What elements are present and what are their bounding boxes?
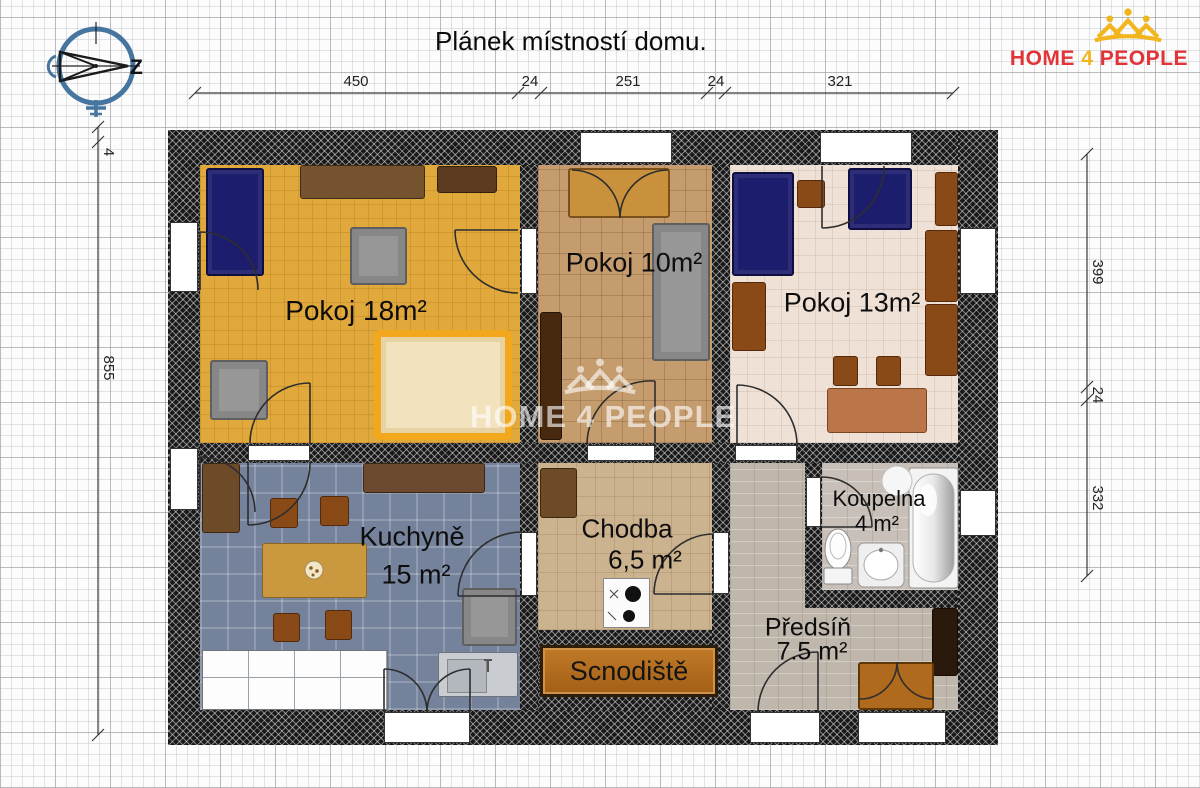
- dimension-right: 399 24 332: [1081, 148, 1106, 582]
- brand-wordmark: HOME 4 PEOPLE: [998, 47, 1188, 71]
- window: [820, 132, 912, 163]
- chair: [876, 356, 901, 386]
- armchair: [462, 588, 517, 646]
- wall-bathroom: [805, 590, 958, 608]
- dimension-top: 450 24 251 24 321: [189, 73, 959, 99]
- dim-label: 24: [708, 73, 725, 90]
- cabinet: [540, 468, 577, 518]
- wall-right: [958, 130, 998, 745]
- dim-label: 24: [1089, 387, 1106, 404]
- wall-interior: [200, 443, 958, 463]
- window: [858, 712, 946, 743]
- shoe-cabinet: [858, 662, 934, 710]
- compass-west-label: Z: [130, 56, 143, 79]
- table: [827, 388, 927, 433]
- wardrobe: [932, 608, 958, 676]
- window: [960, 228, 996, 294]
- chair: [325, 610, 352, 640]
- room-label-pokoj10: Pokoj 10m²: [566, 248, 703, 279]
- room-label-pokoj13: Pokoj 13m²: [784, 288, 921, 319]
- window: [960, 490, 996, 536]
- door-opening: [750, 712, 820, 743]
- brand-four: 4: [1081, 47, 1093, 70]
- brand-people: PEOPLE: [1100, 47, 1188, 70]
- cabinet: [925, 230, 958, 302]
- floorplan-page: Plánek místností domu. HOME 4 PEOPLE: [0, 0, 1200, 788]
- brand-home: HOME: [1010, 47, 1075, 70]
- cabinet: [925, 304, 958, 376]
- kitchen-counter: [202, 650, 388, 710]
- dining-table: [262, 543, 367, 598]
- kitchen-sink: [438, 652, 518, 697]
- door-opening: [384, 712, 470, 743]
- room-area-kuchyne: 15 m²: [381, 560, 450, 591]
- cabinet: [732, 282, 766, 351]
- shelf: [437, 166, 497, 193]
- chair: [270, 498, 298, 528]
- door-opening: [587, 445, 655, 461]
- room-area-chodba: 6,5 m²: [608, 545, 682, 576]
- window: [170, 222, 198, 292]
- wardrobe: [568, 168, 670, 218]
- dim-label: 4: [100, 148, 117, 156]
- dim-label: 321: [827, 73, 852, 90]
- brand-logo: HOME 4 PEOPLE: [998, 8, 1188, 71]
- compass-icon: Z: [48, 22, 143, 117]
- chair: [273, 613, 300, 642]
- armchair: [210, 360, 268, 420]
- sofa: [206, 168, 264, 276]
- dimension-left: 4 855: [92, 121, 117, 741]
- sink-basin: [447, 659, 487, 693]
- door-opening: [735, 445, 797, 461]
- armchair: [848, 168, 912, 230]
- dim-label: 450: [343, 73, 368, 90]
- room-label-kuchyne: Kuchyně: [359, 522, 464, 553]
- staircase-label: Scnodiště: [570, 656, 689, 687]
- dim-label: 855: [100, 355, 117, 380]
- sofa: [652, 223, 710, 361]
- sideboard: [300, 165, 425, 199]
- chair: [833, 356, 858, 386]
- armchair: [350, 227, 407, 285]
- door-opening: [521, 532, 537, 596]
- page-title: Plánek místností domu.: [435, 26, 707, 57]
- wardrobe: [540, 312, 562, 440]
- room-area-koupelna: 4 m²: [855, 511, 899, 537]
- bed: [374, 330, 512, 440]
- dim-label: 251: [615, 73, 640, 90]
- dim-label: 399: [1089, 259, 1106, 284]
- counter: [363, 463, 485, 493]
- window: [170, 448, 198, 510]
- window: [580, 132, 672, 163]
- dim-label: 24: [522, 73, 539, 90]
- door-opening: [713, 532, 729, 594]
- sofa: [732, 172, 794, 276]
- door-opening: [521, 228, 537, 294]
- room-area-predsin: 7.5 m²: [777, 638, 848, 667]
- door-opening: [806, 477, 821, 527]
- wall-interior: [712, 165, 730, 710]
- staircase-box: Scnodiště: [540, 645, 718, 697]
- crown-icon: [1082, 8, 1174, 42]
- chair: [320, 496, 349, 526]
- door-opening: [248, 445, 310, 461]
- cabinet: [935, 172, 958, 226]
- meter-box: [603, 578, 650, 628]
- room-label-koupelna: Koupelna: [833, 486, 926, 512]
- cabinet: [202, 463, 240, 533]
- dim-label: 332: [1089, 485, 1106, 510]
- room-label-chodba: Chodba: [581, 514, 672, 545]
- room-label-pokoj18: Pokoj 18m²: [285, 295, 427, 327]
- side-table: [797, 180, 825, 208]
